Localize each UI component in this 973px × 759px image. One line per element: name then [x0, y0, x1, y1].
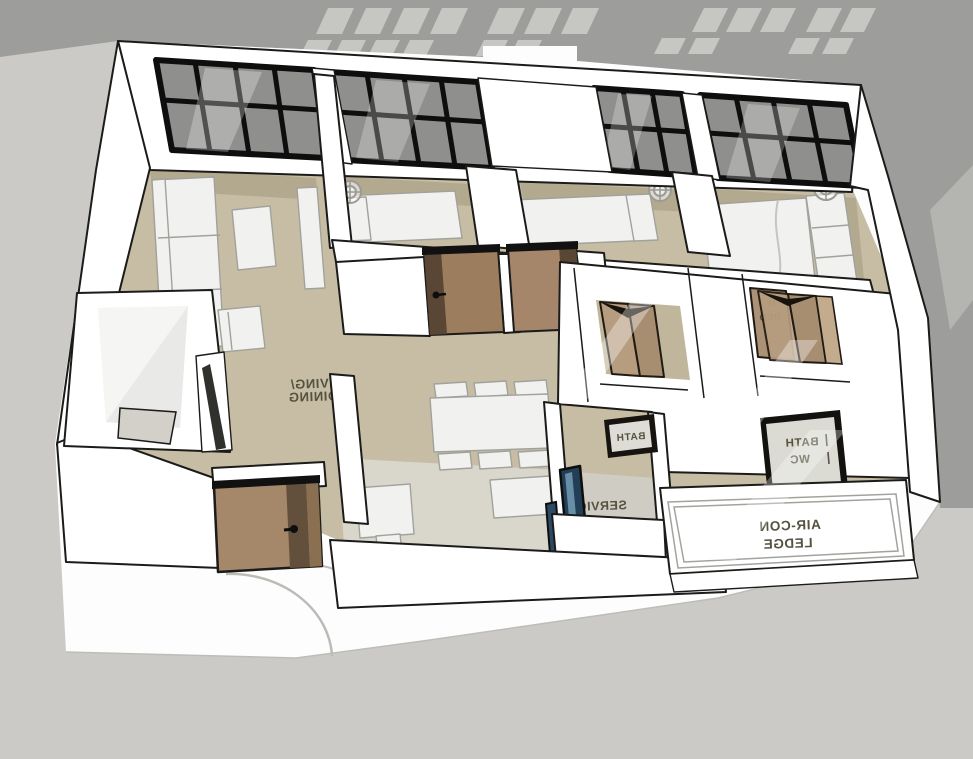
corridor-wall-face-1 [336, 257, 430, 336]
dining-chair [474, 381, 508, 397]
label-living-dining-line2: DINING [288, 388, 338, 405]
window-master [700, 95, 862, 186]
window-living [156, 60, 326, 158]
kitchen-counter [490, 476, 554, 518]
door-stile-dark [286, 481, 310, 568]
bath-signboard: BATH [604, 414, 658, 458]
bedroom-door-1 [422, 244, 504, 335]
dining-table [430, 394, 552, 452]
dining-chair [518, 450, 552, 468]
shelter-floor [118, 408, 176, 444]
dining-chair [434, 382, 468, 398]
household-shelter [64, 290, 232, 452]
floorplan-3d-render: LIVING/ DINING SERVIC YARD [0, 0, 973, 759]
coffee-table [232, 206, 276, 270]
entrance-door [212, 475, 322, 572]
label-bath-sign: BATH [616, 431, 646, 444]
door-handle-icon [284, 529, 294, 530]
dining-chair [478, 451, 512, 469]
floorplan-svg: LIVING/ DINING SERVIC YARD [0, 0, 973, 759]
dining-chair [438, 452, 472, 470]
sign-dash [828, 452, 829, 464]
armchair [218, 306, 265, 352]
label-aircon-ledge-line2: LEDGE [763, 535, 813, 552]
wall-duct-bed2-bed3 [478, 78, 612, 172]
window-bed2 [330, 72, 492, 168]
door-handle-icon [436, 294, 446, 295]
